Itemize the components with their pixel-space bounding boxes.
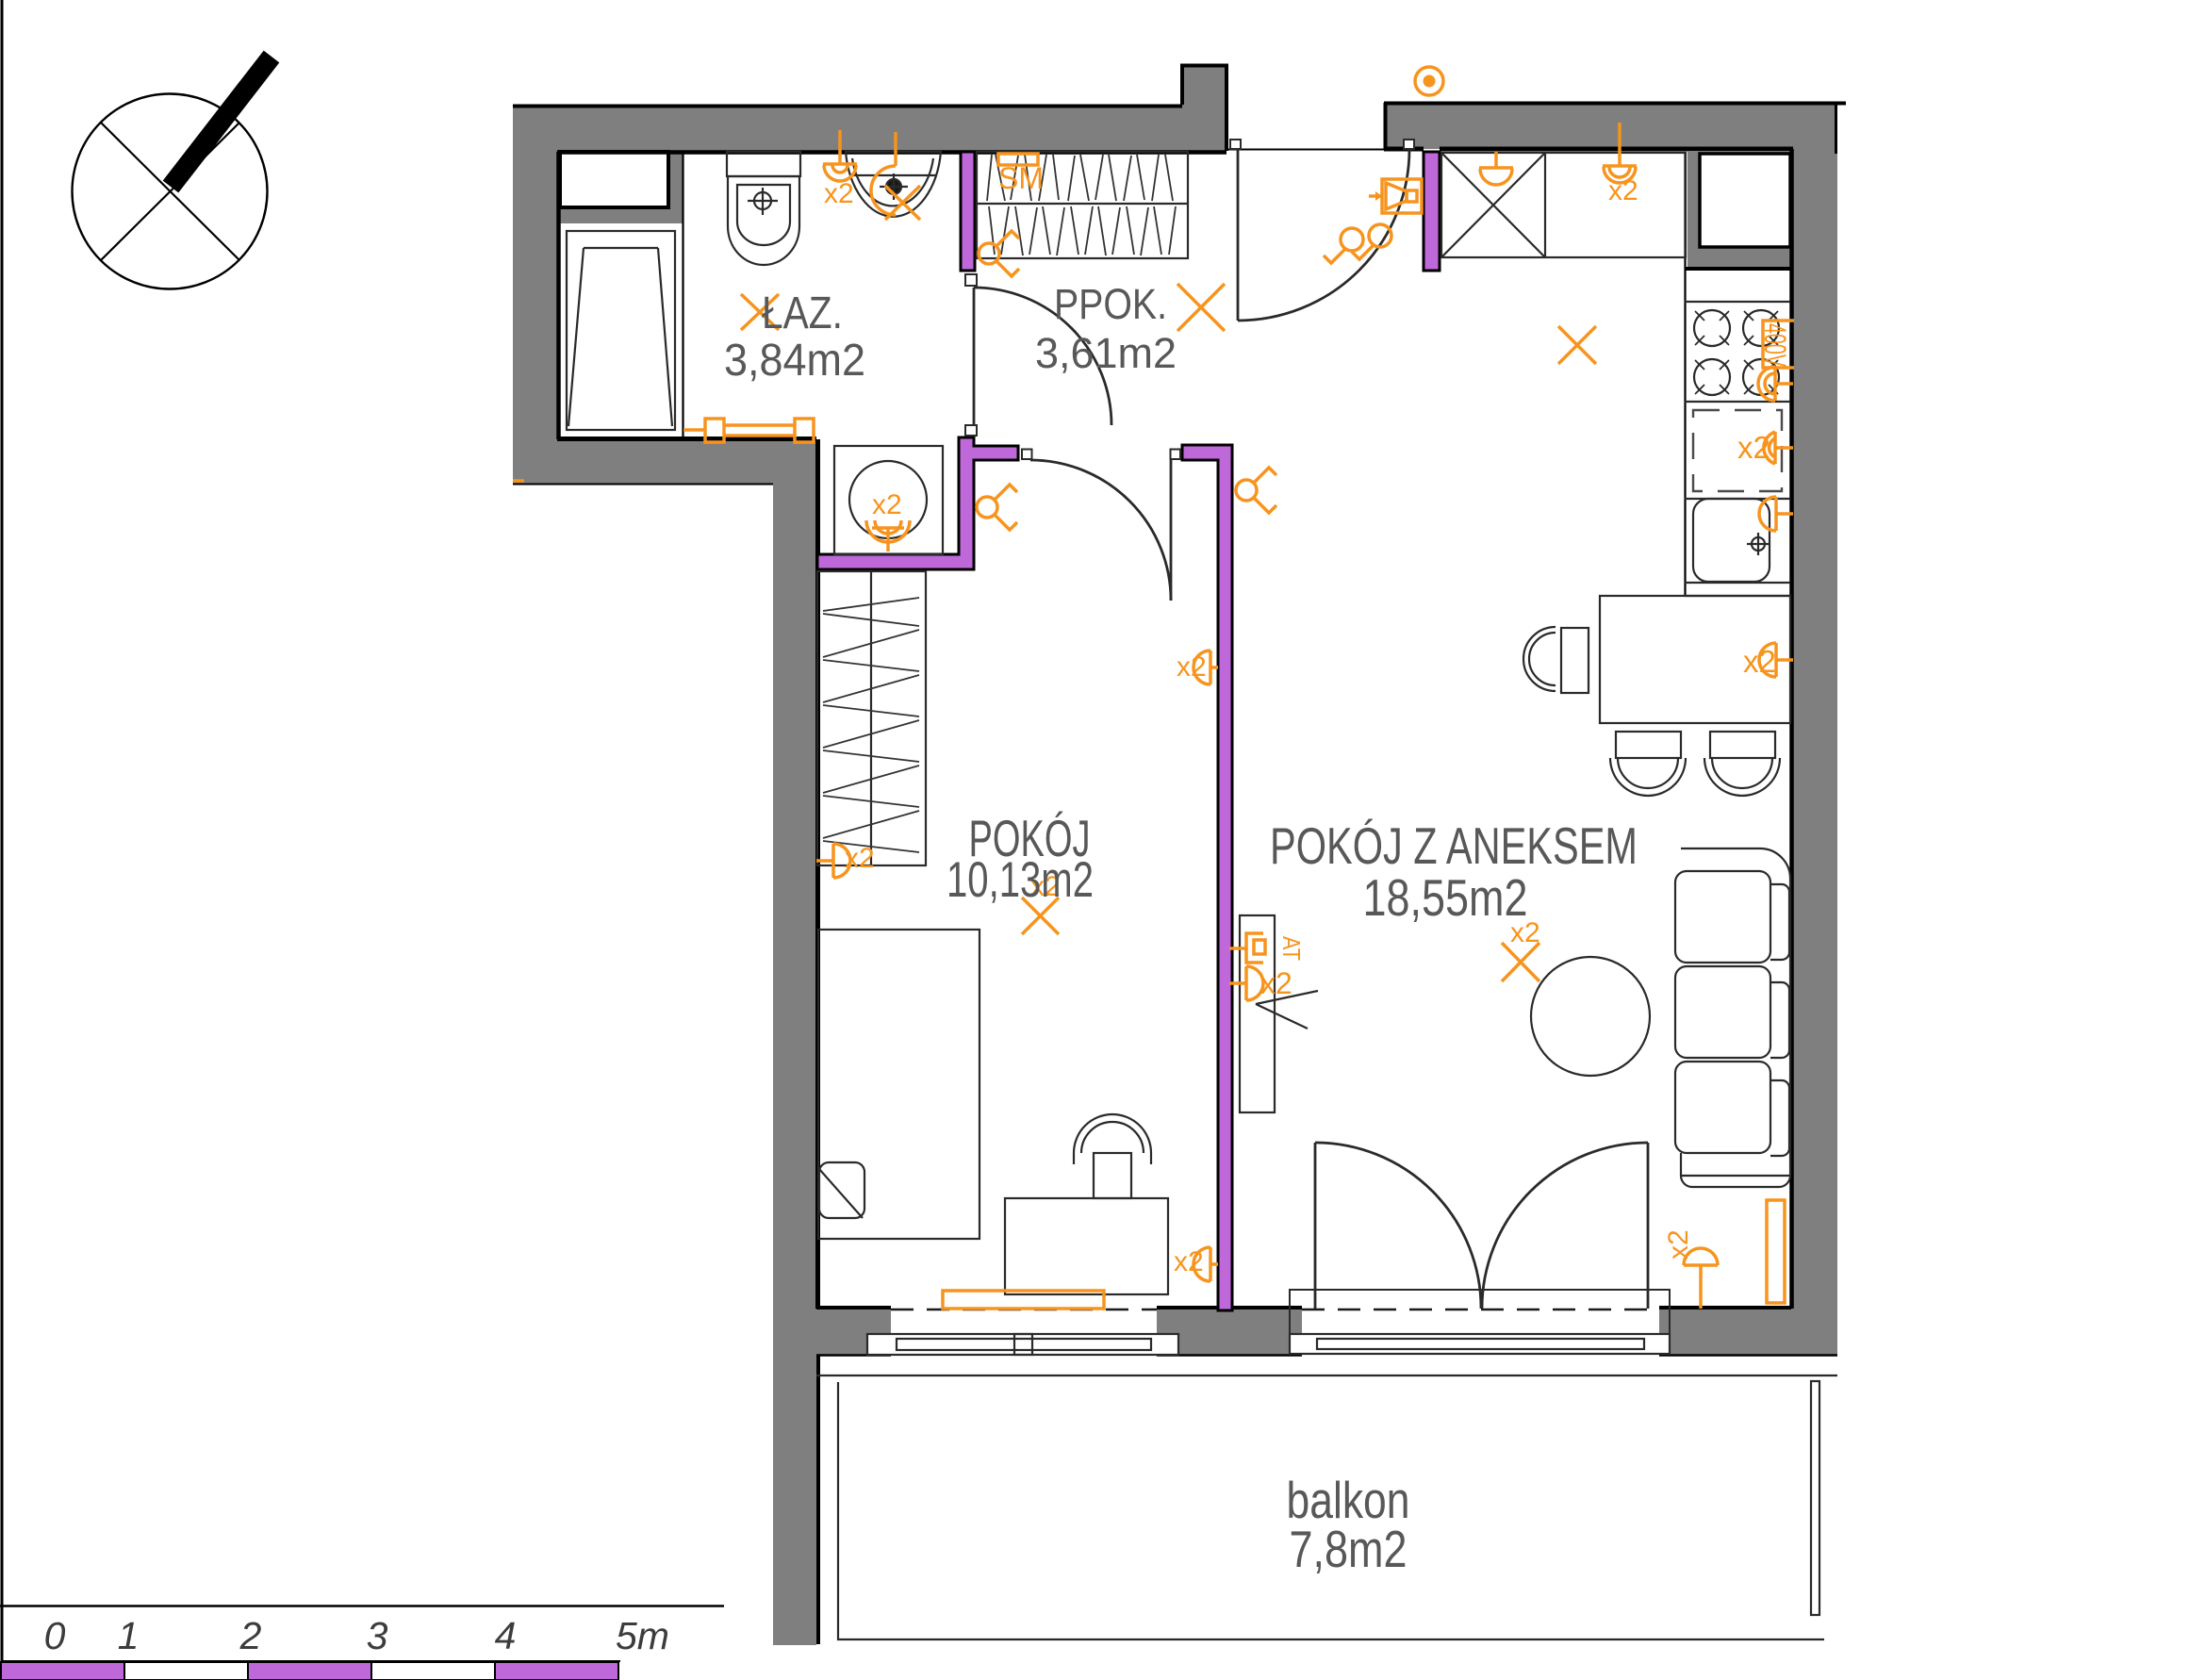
svg-text:x2: x2 xyxy=(824,178,854,209)
svg-text:3: 3 xyxy=(367,1614,388,1657)
svg-text:PPOK.: PPOK. xyxy=(1054,280,1167,328)
svg-text:POKÓJ Z ANEKSEM: POKÓJ Z ANEKSEM xyxy=(1270,816,1638,875)
svg-text:1: 1 xyxy=(118,1614,140,1657)
svg-text:x2: x2 xyxy=(1743,644,1776,679)
svg-text:7,8m2: 7,8m2 xyxy=(1290,1520,1408,1578)
svg-text:x2: x2 xyxy=(1608,175,1638,206)
svg-text:x2: x2 xyxy=(1260,966,1292,1000)
svg-text:2: 2 xyxy=(239,1614,262,1657)
svg-text:ŁAZ.: ŁAZ. xyxy=(762,288,843,338)
svg-text:x2: x2 xyxy=(1663,1229,1694,1260)
svg-text:x2: x2 xyxy=(872,489,902,520)
svg-text:x2: x2 xyxy=(1737,430,1770,465)
svg-text:4: 4 xyxy=(495,1614,517,1657)
svg-text:10,13m2: 10,13m2 xyxy=(947,852,1094,908)
svg-text:18,55m2: 18,55m2 xyxy=(1363,868,1528,927)
svg-text:SM: SM xyxy=(998,161,1044,195)
svg-text:x2: x2 xyxy=(1177,651,1207,683)
svg-text:x2: x2 xyxy=(845,843,875,874)
svg-text:x2: x2 xyxy=(1174,1246,1204,1277)
svg-text:0: 0 xyxy=(44,1614,66,1657)
svg-text:3,61m2: 3,61m2 xyxy=(1035,329,1177,377)
svg-text:AT: AT xyxy=(1277,936,1306,961)
svg-text:5m: 5m xyxy=(616,1614,669,1657)
svg-text:3,84m2: 3,84m2 xyxy=(724,336,865,386)
svg-text:400V: 400V xyxy=(1758,323,1792,367)
